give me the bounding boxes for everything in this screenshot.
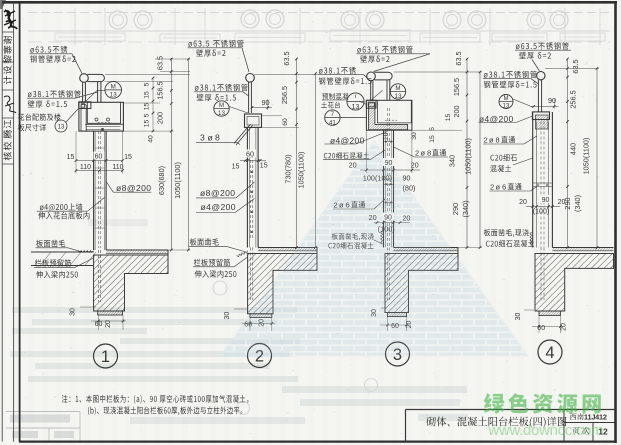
- svg-text:11J412: 11J412: [584, 412, 607, 421]
- svg-text:5: 5: [429, 127, 436, 131]
- svg-text:1050(1100): 1050(1100): [464, 138, 473, 175]
- svg-text:290: 290: [563, 197, 572, 209]
- svg-text:63.5: 63.5: [571, 59, 580, 73]
- svg-text:60: 60: [282, 118, 289, 126]
- svg-text:90: 90: [542, 197, 550, 204]
- svg-text:200: 200: [156, 112, 165, 124]
- svg-text:ø: ø: [496, 183, 501, 192]
- svg-text:1050(1100): 1050(1100): [173, 162, 182, 199]
- svg-text:40: 40: [148, 135, 155, 143]
- svg-text:200: 200: [452, 105, 461, 117]
- svg-text:15: 15: [429, 135, 436, 143]
- svg-text:(340): (340): [461, 200, 470, 217]
- svg-text:256.5: 256.5: [280, 86, 289, 104]
- svg-text:90: 90: [261, 98, 269, 107]
- svg-text:M: M: [219, 102, 224, 109]
- svg-text:13: 13: [58, 124, 65, 130]
- svg-text:13: 13: [218, 110, 225, 117]
- svg-text:340: 340: [448, 155, 457, 167]
- svg-text:15: 15: [260, 163, 268, 170]
- svg-text:2: 2: [490, 183, 494, 192]
- svg-text:100: 100: [382, 129, 389, 141]
- svg-text:13: 13: [395, 93, 402, 100]
- svg-text:8: 8: [496, 136, 501, 145]
- svg-text:(100): (100): [533, 209, 549, 216]
- svg-text:41: 41: [329, 119, 336, 126]
- svg-text:60: 60: [95, 153, 103, 160]
- svg-text:90: 90: [548, 96, 556, 105]
- svg-text:63.5: 63.5: [282, 51, 291, 65]
- svg-text:1050(1100): 1050(1100): [582, 138, 591, 175]
- svg-text:13: 13: [503, 104, 510, 110]
- svg-text:63.5: 63.5: [454, 51, 463, 65]
- svg-text:13: 13: [352, 104, 360, 111]
- svg-text:8: 8: [427, 149, 432, 158]
- svg-text:156.5: 156.5: [452, 78, 461, 96]
- svg-text:M: M: [395, 85, 400, 92]
- svg-text:15: 15: [144, 91, 151, 99]
- svg-text:730(780): 730(780): [284, 154, 293, 183]
- svg-text:2: 2: [484, 136, 488, 145]
- svg-text:ø: ø: [421, 149, 426, 158]
- svg-text:15: 15: [124, 154, 132, 161]
- svg-text:63.5: 63.5: [156, 56, 165, 70]
- svg-text:440: 440: [569, 143, 578, 155]
- svg-text:ø: ø: [208, 133, 214, 143]
- svg-text:20: 20: [561, 323, 568, 331]
- svg-text:(340): (340): [573, 195, 582, 212]
- svg-text:8: 8: [215, 133, 220, 143]
- svg-text:ø8@200: ø8@200: [116, 183, 152, 193]
- svg-text:www.downcc.com: www.downcc.com: [488, 423, 604, 439]
- svg-text:20: 20: [519, 199, 527, 206]
- svg-text:6: 6: [502, 183, 507, 192]
- svg-text:ø: ø: [489, 136, 494, 145]
- svg-text:3: 3: [200, 133, 205, 143]
- svg-text:15: 15: [67, 154, 75, 161]
- svg-text:15: 15: [445, 114, 452, 122]
- svg-text:4: 4: [545, 344, 554, 362]
- svg-text:90: 90: [402, 174, 410, 183]
- svg-text:ø4@200: ø4@200: [201, 202, 237, 212]
- svg-text:7: 7: [331, 111, 335, 118]
- svg-text:30: 30: [515, 313, 522, 321]
- svg-text:15: 15: [232, 163, 240, 170]
- svg-text:M: M: [111, 83, 116, 90]
- svg-text:630(680): 630(680): [157, 166, 166, 195]
- svg-text:30: 30: [224, 312, 231, 320]
- svg-text:256.5: 256.5: [569, 90, 578, 108]
- svg-text:ø8@200: ø8@200: [200, 188, 236, 198]
- svg-text:13: 13: [110, 91, 117, 98]
- svg-text:2: 2: [415, 149, 419, 158]
- svg-text:30: 30: [411, 132, 418, 140]
- svg-text:15: 15: [144, 103, 151, 111]
- svg-text:110: 110: [112, 164, 123, 171]
- svg-text:290: 290: [451, 203, 460, 215]
- svg-text:M: M: [504, 96, 509, 102]
- svg-text:110: 110: [80, 164, 91, 171]
- svg-text:15: 15: [144, 120, 151, 128]
- svg-text:156.5: 156.5: [156, 81, 165, 99]
- svg-text:1: 1: [101, 348, 110, 366]
- svg-text:1050(1100): 1050(1100): [297, 152, 306, 189]
- svg-text:5: 5: [144, 82, 151, 86]
- svg-text:60: 60: [246, 150, 254, 159]
- svg-text:30: 30: [70, 308, 77, 316]
- svg-text:60: 60: [537, 325, 545, 332]
